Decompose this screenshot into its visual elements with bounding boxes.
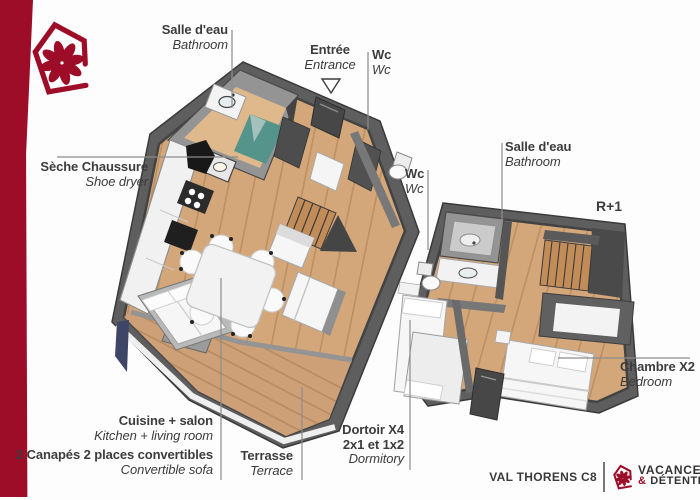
label-bathroom-gf: Salle d'eau Bathroom	[108, 23, 228, 52]
label-wc-r1-en: Wc	[405, 182, 424, 197]
brand-detente: DÉTENTE	[650, 475, 700, 487]
label-kitchen-living-en: Kitchen + living room	[53, 429, 213, 444]
label-dormitory-fr: Dortoir X4	[334, 423, 404, 438]
label-shoe-dryer-fr: Sèche Chaussure	[38, 160, 148, 175]
label-wc-gf: Wc Wc	[372, 48, 391, 77]
label-sofas: 2 Canapés 2 places convertibles Converti…	[13, 448, 213, 477]
label-floor-r1: R+1	[596, 198, 622, 214]
label-bathroom-r1-fr: Salle d'eau	[505, 140, 571, 155]
floor-plan-image: Salle d'eau Bathroom Entrée Entrance Wc …	[0, 0, 700, 500]
label-bedroom-en: Bedroom	[620, 375, 695, 390]
label-bedroom-fr: Chambre X2	[620, 360, 695, 375]
label-wc-r1: Wc Wc	[405, 167, 424, 196]
brand-ampersand: &	[638, 475, 647, 487]
label-wc-gf-en: Wc	[372, 63, 391, 78]
r1-floor-plan	[383, 190, 647, 450]
label-bathroom-gf-fr: Salle d'eau	[108, 23, 228, 38]
label-terrace-fr: Terrasse	[223, 449, 293, 464]
label-entrance: Entrée Entrance	[295, 43, 365, 72]
entrance-triangle-marker	[322, 79, 340, 93]
label-kitchen-living-fr: Cuisine + salon	[53, 414, 213, 429]
label-terrace-en: Terrace	[223, 464, 293, 479]
label-entrance-fr: Entrée	[295, 43, 365, 58]
label-sofas-fr: 2 Canapés 2 places convertibles	[13, 448, 213, 463]
r1-door	[470, 368, 504, 420]
r1-shower	[440, 212, 504, 263]
label-entrance-en: Entrance	[295, 58, 365, 73]
label-terrace: Terrasse Terrace	[223, 449, 293, 478]
label-dormitory: Dortoir X4 2x1 et 1x2 Dormitory	[334, 423, 404, 467]
label-sofas-en: Convertible sofa	[13, 463, 213, 478]
brand-wordmark: VACANCES & DÉTENTE	[638, 464, 700, 487]
gf-navy-panel	[115, 320, 129, 372]
label-bedroom: Chambre X2 Bedroom	[620, 360, 695, 389]
label-bathroom-gf-en: Bathroom	[108, 38, 228, 53]
label-wc-gf-fr: Wc	[372, 48, 391, 63]
label-wc-r1-fr: Wc	[405, 167, 424, 182]
brand-line2: & DÉTENTE	[638, 476, 700, 487]
label-shoe-dryer-en: Shoe dryer	[38, 175, 148, 190]
r1-nightstand	[495, 330, 511, 344]
label-bathroom-r1-en: Bathroom	[505, 155, 571, 170]
label-shoe-dryer: Sèche Chaussure Shoe dryer	[38, 160, 148, 189]
footer-unit-name: VAL THORENS C8	[487, 470, 597, 484]
label-bathroom-r1: Salle d'eau Bathroom	[505, 140, 571, 169]
label-kitchen-living: Cuisine + salon Kitchen + living room	[53, 414, 213, 443]
label-dormitory-fr2: 2x1 et 1x2	[334, 438, 404, 453]
ground-floor-plan	[95, 62, 419, 470]
r1-closet	[539, 293, 634, 345]
footer-brand-logo	[610, 464, 636, 494]
label-dormitory-en: Dormitory	[334, 452, 404, 467]
